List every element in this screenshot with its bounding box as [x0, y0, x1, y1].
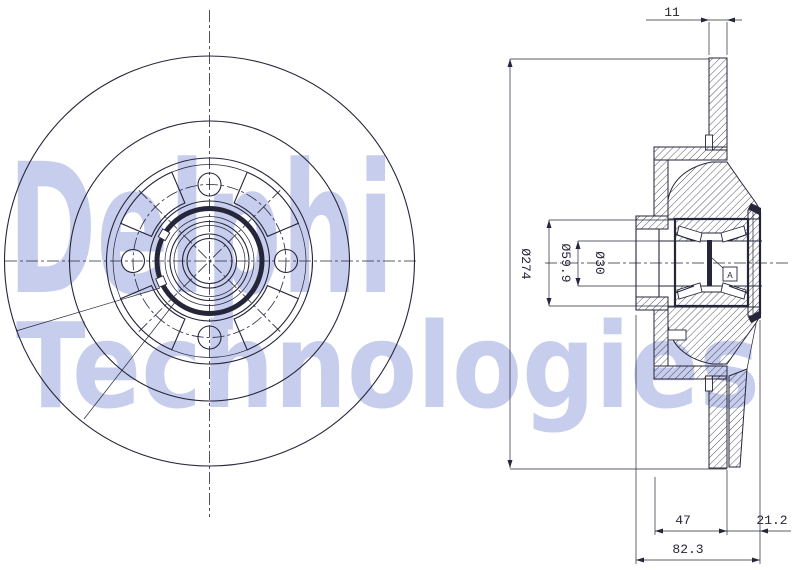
hub-flange-top [636, 216, 668, 229]
dim-outer-diameter: Ø274 [518, 248, 533, 279]
brake-disc-drawing: Delphi Technologies [0, 0, 793, 570]
dim-overall-depth: 82.3 [672, 542, 703, 557]
bearing-spacer-bar [707, 240, 712, 286]
technical-drawing-page: Delphi Technologies [0, 0, 793, 570]
hat-flange-bottom [654, 366, 727, 379]
bearing-cap [748, 210, 760, 316]
dim-disc-thickness: 11 [664, 5, 680, 20]
watermark-line2: Technologies [16, 297, 760, 435]
hub-flange-bottom [636, 297, 668, 310]
bell-wall-top [654, 160, 668, 216]
cone-top [668, 162, 760, 219]
bell-wall-bottom [654, 310, 668, 366]
dim-bearing-outer-diameter: Ø59.9 [558, 243, 573, 282]
dim-hub-offset: 47 [675, 513, 691, 528]
hat-flange-top [654, 147, 727, 160]
watermark: Delphi Technologies [8, 126, 760, 435]
circlip-groove [668, 330, 686, 340]
datum-label: A [727, 271, 733, 281]
dim-bore-diameter: Ø30 [592, 251, 607, 274]
dim-bearing-protrusion: 21.2 [756, 513, 787, 528]
